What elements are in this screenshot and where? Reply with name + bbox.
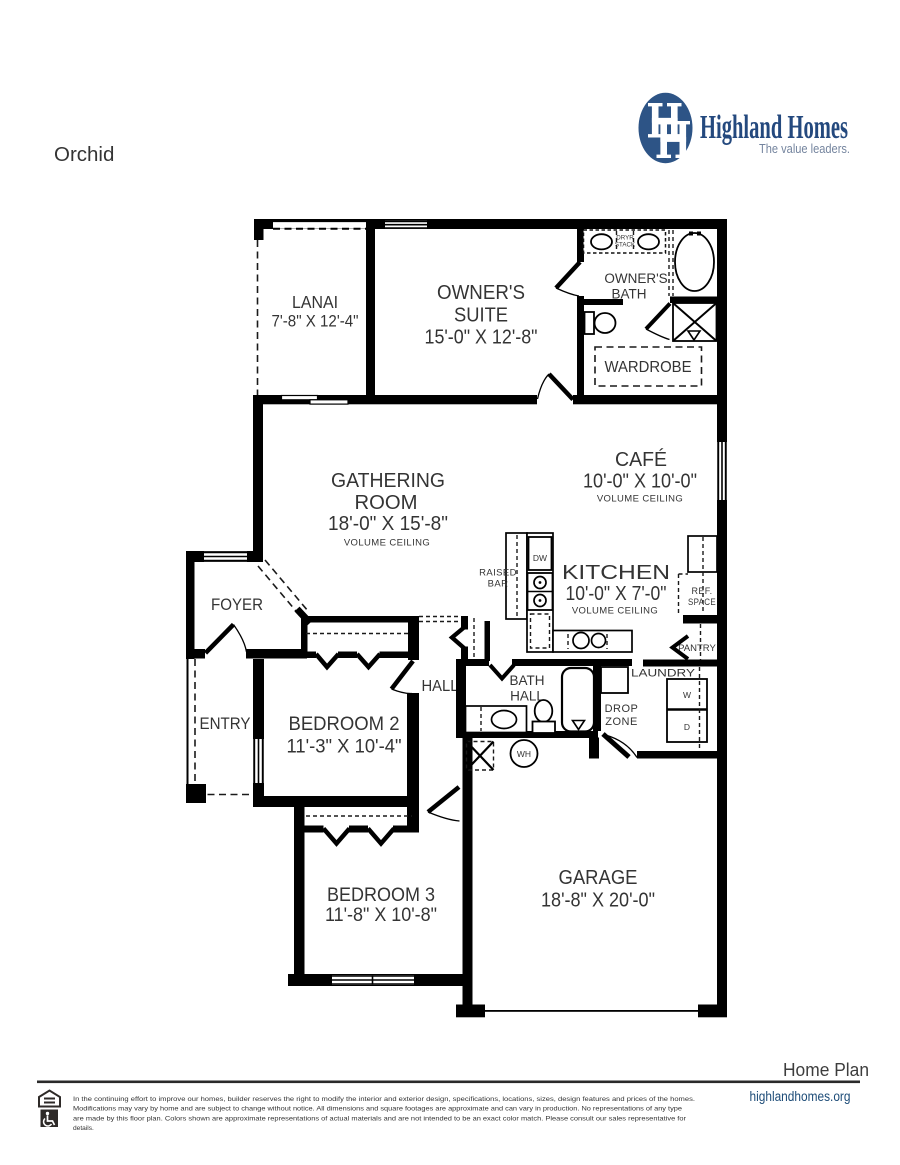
svg-text:OWNER'S: OWNER'S xyxy=(437,281,525,304)
svg-text:DRYR: DRYR xyxy=(616,235,634,242)
svg-text:BEDROOM 3: BEDROOM 3 xyxy=(327,885,435,906)
svg-text:SPACE: SPACE xyxy=(688,597,716,608)
svg-text:18'-0" X 15'-8": 18'-0" X 15'-8" xyxy=(328,513,448,535)
svg-text:OWNER'S: OWNER'S xyxy=(604,271,667,286)
svg-text:11'-8" X 10'-8": 11'-8" X 10'-8" xyxy=(325,904,437,926)
svg-text:10'-0" X 10'-0": 10'-0" X 10'-0" xyxy=(583,471,697,493)
svg-text:FOYER: FOYER xyxy=(211,596,263,614)
svg-text:In the continuing effort to im: In the continuing effort to improve our … xyxy=(73,1096,695,1103)
svg-text:BAR: BAR xyxy=(488,579,509,590)
svg-text:VOLUME CEILING: VOLUME CEILING xyxy=(572,606,658,617)
svg-text:D: D xyxy=(684,722,690,732)
svg-text:highlandhomes.org: highlandhomes.org xyxy=(750,1089,851,1104)
svg-text:Modifications may vary by home: Modifications may vary by home and are s… xyxy=(73,1106,682,1113)
svg-text:18'-8" X 20'-0": 18'-8" X 20'-0" xyxy=(541,890,655,912)
svg-text:ROOM: ROOM xyxy=(355,491,418,514)
svg-text:WARDROBE: WARDROBE xyxy=(605,359,692,376)
svg-text:SUITE: SUITE xyxy=(454,304,508,327)
svg-text:11'-3" X 10'-4": 11'-3" X 10'-4" xyxy=(287,736,402,758)
svg-text:are made by this floor plan. C: are made by this floor plan. Colors show… xyxy=(73,1115,687,1122)
svg-text:W: W xyxy=(683,690,691,700)
svg-text:10'-0" X 7'-0": 10'-0" X 7'-0" xyxy=(566,583,667,605)
svg-text:CAFÉ: CAFÉ xyxy=(615,448,667,471)
svg-text:DROP: DROP xyxy=(605,703,639,715)
svg-text:RAISED: RAISED xyxy=(479,568,517,579)
svg-text:GATHERING: GATHERING xyxy=(331,469,445,492)
svg-text:The value leaders.: The value leaders. xyxy=(759,141,850,156)
svg-text:STACK: STACK xyxy=(615,242,636,249)
svg-text:KITCHEN: KITCHEN xyxy=(562,561,670,584)
svg-text:DW: DW xyxy=(533,553,547,563)
svg-text:PANTRY: PANTRY xyxy=(678,643,716,654)
svg-text:HALL: HALL xyxy=(422,678,459,695)
svg-text:LANAI: LANAI xyxy=(292,292,338,312)
svg-text:LAUNDRY: LAUNDRY xyxy=(631,668,696,680)
svg-text:WH: WH xyxy=(517,749,531,759)
svg-text:ENTRY: ENTRY xyxy=(200,715,251,733)
svg-text:VOLUME CEILING: VOLUME CEILING xyxy=(344,538,430,549)
svg-text:VOLUME CEILING: VOLUME CEILING xyxy=(597,494,683,505)
svg-text:15'-0" X 12'-8": 15'-0" X 12'-8" xyxy=(425,327,538,349)
svg-text:details.: details. xyxy=(73,1125,94,1132)
svg-text:7'-8" X 12'-4": 7'-8" X 12'-4" xyxy=(272,313,359,331)
svg-text:ZONE: ZONE xyxy=(605,716,638,728)
svg-text:GARAGE: GARAGE xyxy=(559,866,638,889)
svg-text:BEDROOM 2: BEDROOM 2 xyxy=(289,714,400,735)
svg-text:Orchid: Orchid xyxy=(54,143,114,166)
svg-text:REF.: REF. xyxy=(692,586,713,597)
svg-text:BATH: BATH xyxy=(611,287,646,302)
svg-text:BATH: BATH xyxy=(509,673,544,688)
svg-text:Home Plan: Home Plan xyxy=(783,1060,869,1080)
